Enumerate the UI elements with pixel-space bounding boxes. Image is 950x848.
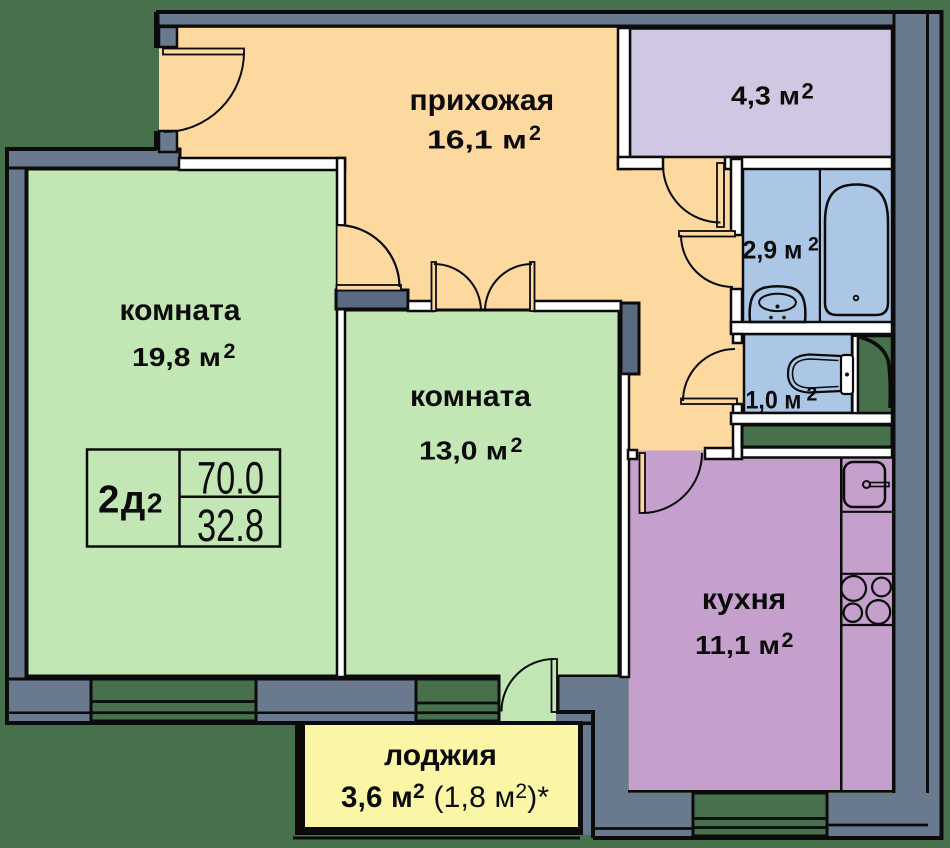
svg-text:прихожая: прихожая: [410, 84, 555, 117]
svg-text:лоджия: лоджия: [384, 739, 497, 772]
svg-text:1,0 м: 1,0 м: [746, 387, 802, 415]
svg-text:16,1 м: 16,1 м: [427, 125, 527, 155]
svg-text:2: 2: [529, 121, 541, 145]
svg-text:кухня: кухня: [702, 583, 786, 616]
svg-text:70.0: 70.0: [197, 453, 264, 504]
svg-text:2: 2: [808, 234, 819, 256]
svg-text:2: 2: [802, 79, 814, 104]
svg-text:13,0 м: 13,0 м: [419, 436, 508, 466]
svg-text:32.8: 32.8: [197, 500, 264, 551]
svg-text:комната: комната: [120, 294, 241, 327]
svg-text:19,8 м: 19,8 м: [132, 342, 221, 372]
svg-text:2: 2: [511, 433, 523, 457]
svg-text:2,9 м: 2,9 м: [743, 237, 803, 265]
svg-text:4,3 м: 4,3 м: [731, 81, 800, 111]
svg-text:11,1 м: 11,1 м: [695, 630, 780, 660]
svg-text:комната: комната: [410, 380, 531, 413]
svg-text:2: 2: [782, 628, 794, 652]
svg-text:2: 2: [224, 339, 236, 363]
svg-text:2: 2: [807, 384, 818, 406]
